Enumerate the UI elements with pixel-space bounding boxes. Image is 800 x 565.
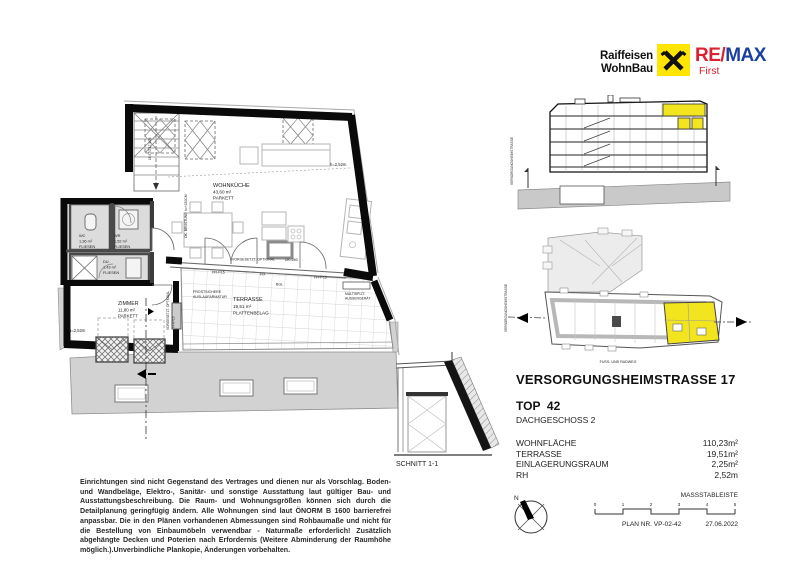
plan-sheet: Raiffeisen WohnBau RE/MAX First: [0, 0, 800, 565]
window-elevation: [408, 396, 446, 452]
building-section-drawing: VERSORGUNGSHEIMSTRASSE: [500, 95, 755, 215]
schnitt-detail-drawing: SCHNITT 1-1: [390, 350, 505, 475]
bed: [98, 318, 164, 339]
stairwell: [134, 113, 179, 191]
room-label-zimmer: ZIMMER: [118, 301, 139, 307]
area-label: WOHNFLÄCHE: [516, 438, 677, 449]
area-table-row: RH 2,52m: [516, 470, 738, 481]
room-floor-wohnkueche: PARKETT: [213, 196, 234, 201]
section-street-label: VERSORGUNGSHEIMSTRASSE: [510, 137, 514, 185]
bgl-label: BGL: [276, 283, 283, 287]
raiffeisen-gable-cross-icon: [657, 44, 690, 76]
area-value: 19,51m²: [677, 449, 738, 460]
room-area-wohnkueche: 43,60 m²: [213, 190, 232, 195]
schnitt-label: SCHNITT 1-1: [396, 461, 438, 468]
plan-number: PLAN NR. VP-02-42: [622, 521, 681, 528]
scale-tick: 3: [678, 502, 681, 507]
roof-insulation: [452, 357, 499, 448]
compass-icon: N: [505, 488, 560, 543]
frost-label-1: FROSTSICHERE: [193, 290, 222, 294]
room-label-wohnkueche: WOHNKÜCHE: [213, 182, 250, 189]
ffh-left-label: FFH=15: [212, 271, 225, 275]
unit-number: TOP 42: [516, 399, 738, 413]
armchair: [240, 147, 258, 164]
room-floor-wr: FLIESEN: [114, 244, 130, 249]
room-floor-zimmer: PARKETT: [118, 314, 138, 319]
scale-tick: 0: [594, 502, 597, 507]
area-value: 2,25m²: [677, 459, 738, 470]
zimmer-window-label: VORGESETZT. OPTIONAL: [166, 291, 170, 330]
scale-tick: 5: [734, 502, 737, 507]
disclaimer-text: Einrichtungen sind nicht Gegenstand des …: [80, 478, 391, 556]
room-label-wc: WC: [79, 233, 86, 238]
height-label-zimmer: h=2,52m: [69, 328, 86, 333]
raiffeisen-logo-line2: WohnBau: [585, 63, 653, 76]
multisplit-label-1: MULTISPLIT-: [345, 292, 365, 296]
area-label: TERRASSE: [516, 449, 677, 460]
remax-first-label: First: [699, 65, 719, 77]
room-area-terrasse: 19,51 m²: [233, 304, 252, 309]
room-area-wc: 1,36 m²: [79, 239, 93, 244]
room-area-wr: 1,52 m²: [114, 239, 128, 244]
scale-bar-label: MASSSTABLEISTE: [600, 492, 738, 499]
ground: [518, 182, 730, 209]
scale-bar: 0 1 2 3 4 5: [588, 500, 743, 520]
room-floor-du: FLIESEN: [103, 270, 119, 275]
sofa: [262, 144, 330, 166]
fix-label: FIX: [260, 273, 266, 277]
du-sink: [126, 258, 141, 278]
dining-table: [184, 213, 232, 247]
roof-skylight: [284, 378, 317, 394]
remax-logo-re: RE: [695, 45, 720, 66]
plan-date: 27.06.2022: [697, 521, 738, 528]
address-title: VERSORGUNGSHEIMSTRASSE 17: [516, 372, 738, 387]
bruestung-label: OK. BRÜSTUNG h=+150CM: [184, 194, 188, 238]
area-table: WOHNFLÄCHE 110,23m² TERRASSE 19,51m² EIN…: [516, 438, 738, 480]
area-value: 2,52m: [677, 470, 738, 481]
zimmer-window-ffh-label: FFH=15: [172, 316, 176, 328]
toilet: [85, 214, 96, 230]
coffee-table: [268, 242, 292, 258]
raiffeisen-wohnbau-logo: Raiffeisen WohnBau: [585, 50, 653, 75]
terrace-area: [181, 268, 393, 350]
area-label: EINLAGERUNGSRAUM: [516, 459, 677, 470]
room-area-du: 1,43 m²: [103, 265, 117, 270]
skylight: [185, 121, 215, 159]
room-label-wr: WR: [114, 233, 121, 238]
area-table-row: TERRASSE 19,51m²: [516, 449, 738, 460]
roof-skylight: [220, 380, 253, 396]
vorgesetzt-label: VORGESETZT. OPTIONAL: [232, 258, 275, 262]
area-table-row: EINLAGERUNGSRAUM 2,25m²: [516, 459, 738, 470]
neighbour-roofs: [543, 228, 642, 292]
height-label-living: h=2,52m: [330, 162, 347, 167]
footpath-label: FUSS- UND RADWEG: [600, 360, 637, 364]
stair-core: [612, 316, 621, 327]
scale-tick: 1: [622, 502, 625, 507]
compass-needle: [520, 500, 534, 520]
roof-skylight: [115, 385, 148, 402]
remax-logo-max: MAX: [725, 45, 766, 66]
area-table-row: WOHNFLÄCHE 110,23m²: [516, 438, 738, 449]
remax-logo: RE/MAX: [695, 45, 766, 67]
compass-north-label: N: [514, 495, 519, 502]
stairs-label: 18 STG 17,4/24: [148, 137, 152, 160]
room-label-du: DU.: [103, 259, 110, 264]
room-area-zimmer: 11,80 m²: [118, 308, 136, 313]
height-line: [168, 168, 350, 177]
highlighted-unit-siteplan: [664, 302, 719, 344]
room-floor-wc: FLIESEN: [79, 244, 95, 249]
room-floor-terrasse: PLATTENBELAG: [233, 311, 269, 316]
room-label-terrasse: TERRASSE: [233, 297, 263, 303]
main-floorplan-drawing: WOHNKÜCHE 43,60 m² PARKETT ZIMMER 11,80 …: [50, 85, 410, 475]
siteplan-street-label: VERSORGUNGSHEIMSTRASSE: [504, 284, 508, 332]
area-label: RH: [516, 470, 677, 481]
site-plan-drawing: VERSORGUNGSHEIMSTRASSE FUSS- UND RADWEG: [495, 225, 760, 375]
uk-label: UK=260: [285, 258, 298, 262]
multisplit-label-2: AUSSENGERÄT: [345, 297, 371, 301]
scale-tick: 4: [706, 502, 709, 507]
raiffeisen-logo-line1: Raiffeisen: [585, 50, 653, 63]
area-value: 110,23m²: [677, 438, 738, 449]
washing-machine: [119, 210, 138, 229]
unit-floor: DACHGESCHOSS 2: [516, 415, 738, 425]
kitchen-island: [262, 212, 304, 242]
ffh-right-label: FFH=15: [314, 276, 327, 280]
frost-label-2: AUSLAUFARMATUR: [193, 295, 227, 299]
unit-info-block: VERSORGUNGSHEIMSTRASSE 17 TOP 42 DACHGES…: [516, 372, 738, 480]
scale-tick: 2: [650, 502, 653, 507]
